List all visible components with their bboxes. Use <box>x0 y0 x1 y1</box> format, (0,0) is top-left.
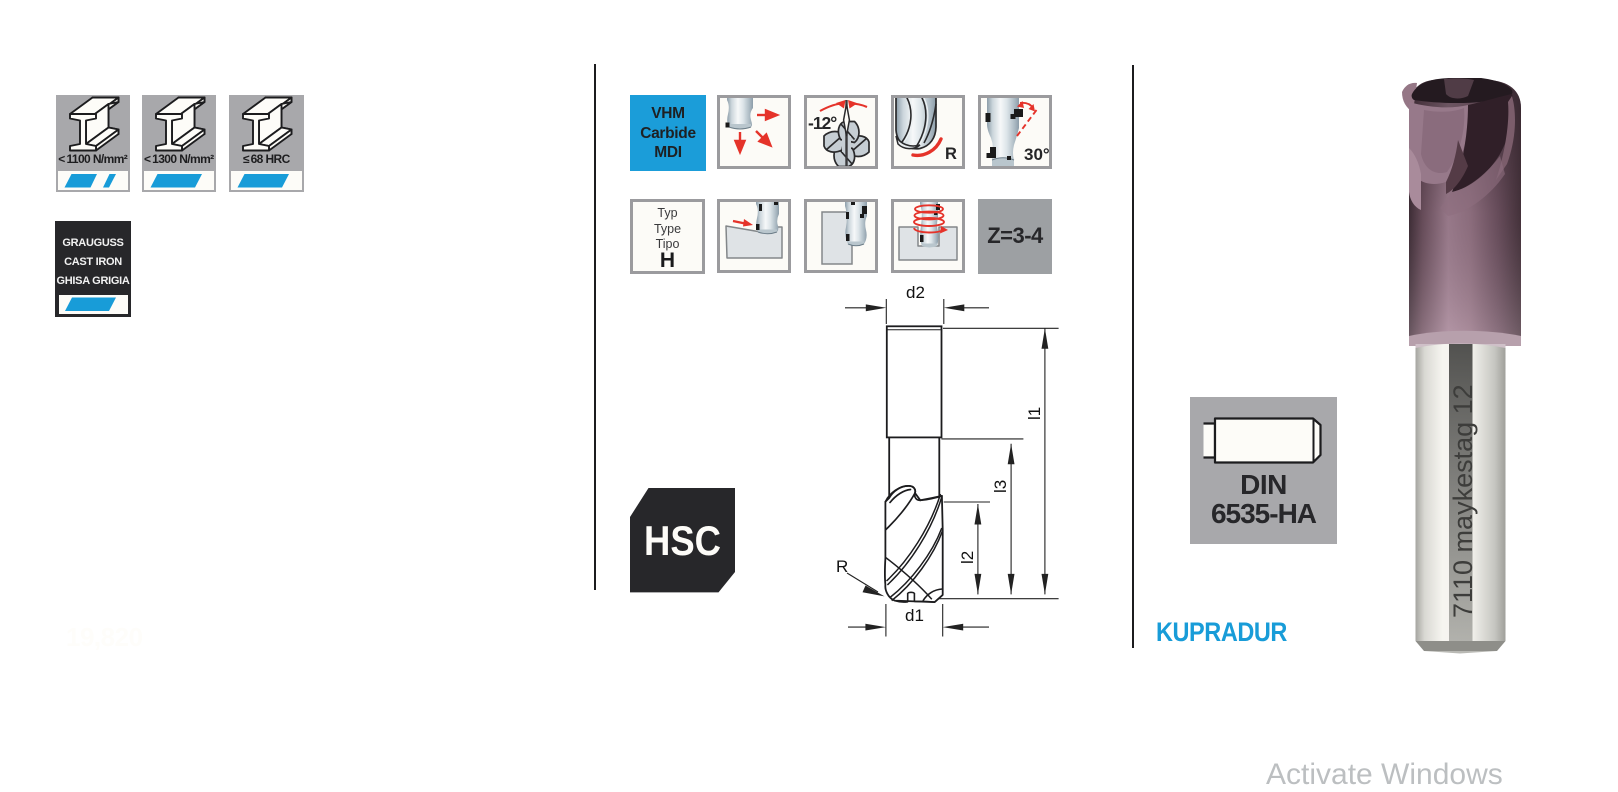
svg-text:HSC: HSC <box>644 517 721 564</box>
svg-text:-12°: -12° <box>808 113 837 133</box>
svg-text:7110 maykestag 12: 7110 maykestag 12 <box>1448 384 1478 618</box>
svg-text:R: R <box>945 145 957 163</box>
svg-text:6535-HA: 6535-HA <box>1210 498 1316 529</box>
svg-text:30°: 30° <box>1024 145 1049 164</box>
svg-text:l1: l1 <box>1025 407 1044 420</box>
svg-text:d1: d1 <box>905 606 924 625</box>
svg-text:DIN: DIN <box>1240 469 1287 500</box>
svg-text:R: R <box>836 557 848 576</box>
svg-text:l3: l3 <box>991 480 1010 493</box>
svg-text:d2: d2 <box>906 283 925 302</box>
svg-text:l2: l2 <box>958 551 977 564</box>
